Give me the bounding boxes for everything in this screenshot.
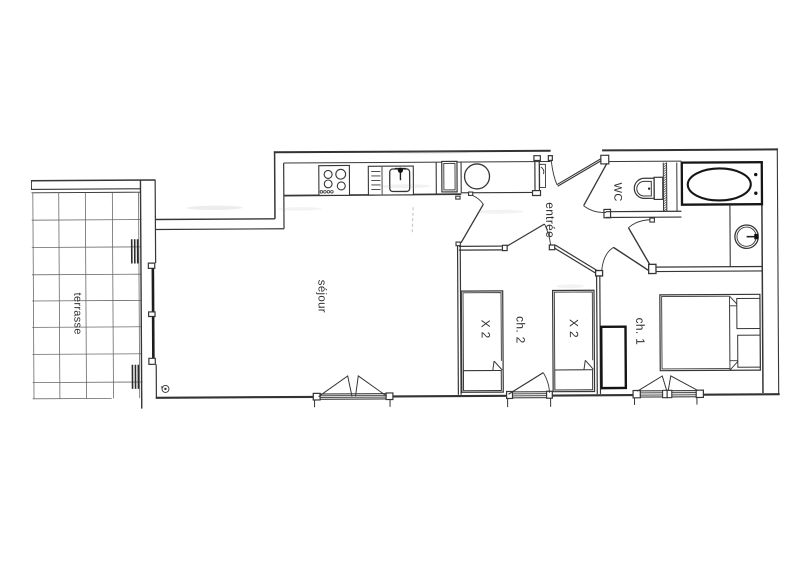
svg-text:séjour: séjour [315,280,327,313]
svg-text:terrasse: terrasse [71,293,83,335]
svg-text:X 2: X 2 [567,319,581,338]
svg-text:ch. 2: ch. 2 [513,316,527,344]
svg-text:entrée: entrée [543,202,557,238]
svg-text:X 2: X 2 [479,320,493,339]
svg-text:WC: WC [611,183,623,202]
svg-text:ch. 1: ch. 1 [633,318,647,346]
